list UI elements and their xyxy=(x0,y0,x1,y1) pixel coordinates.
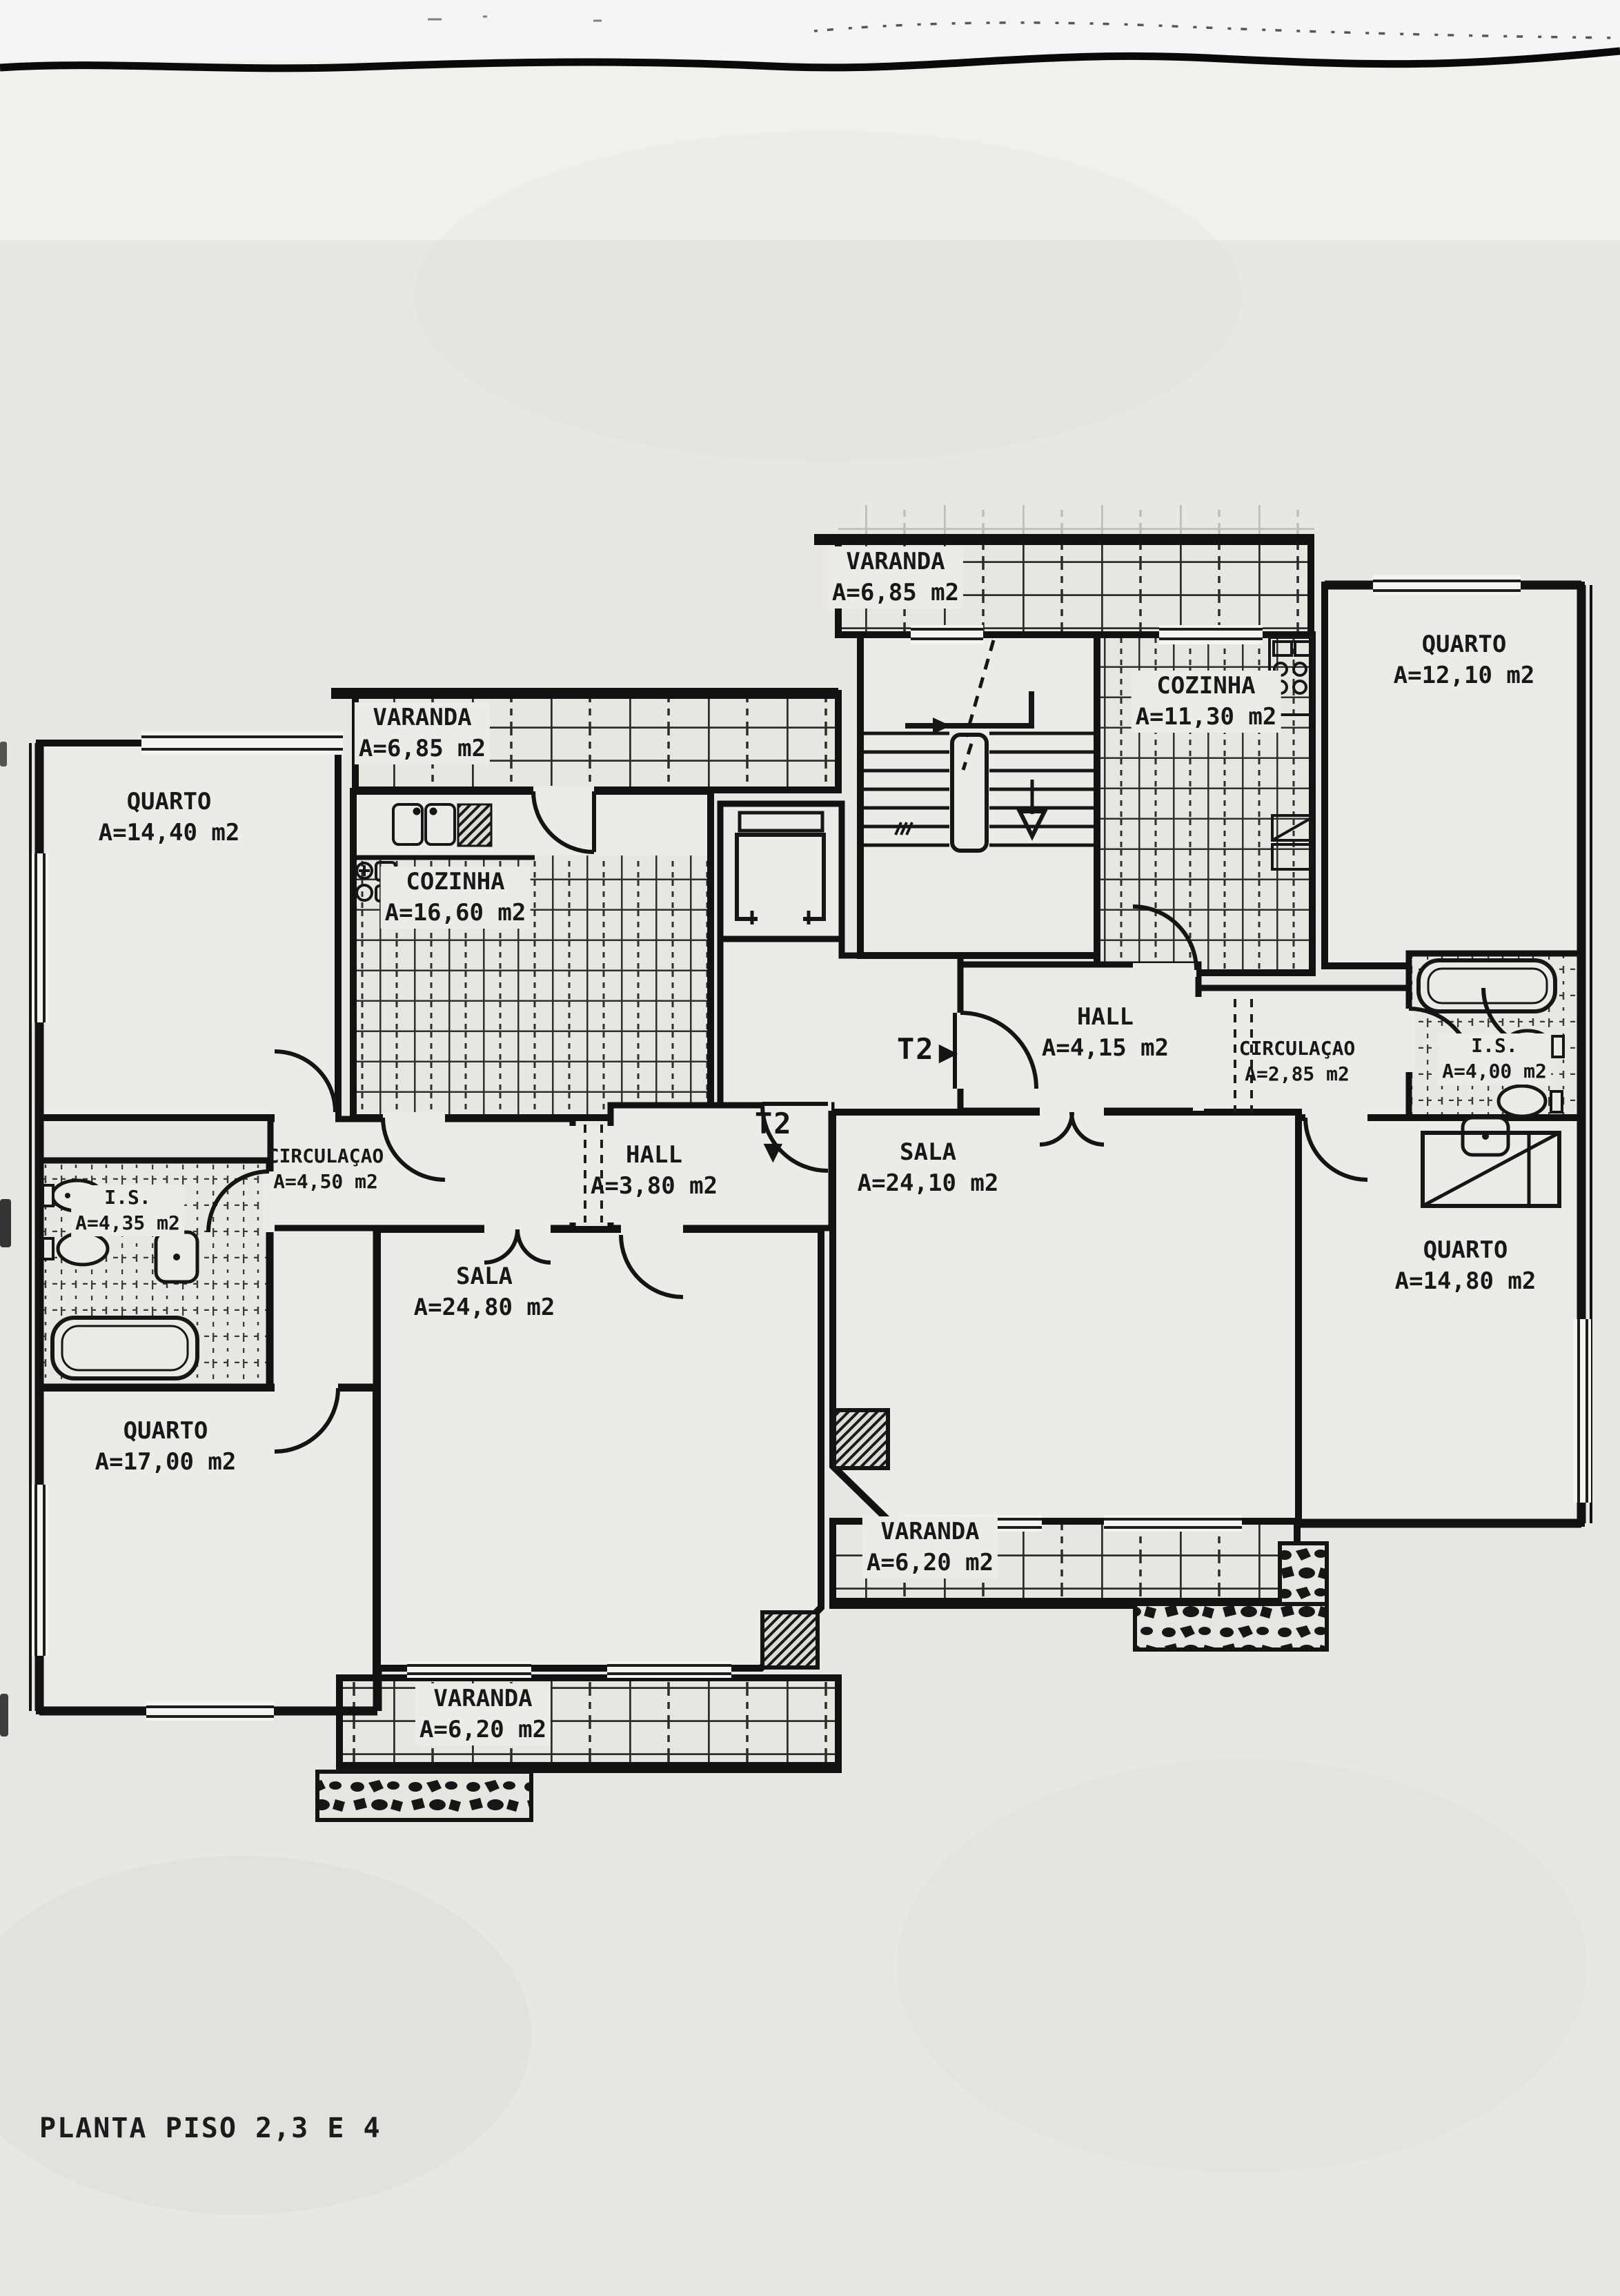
room-label-quarto-top-left: QUARTO A=14,40 m2 xyxy=(95,786,244,849)
room-label-circulacao-right: CIRCULAÇAO A=2,85 m2 xyxy=(1235,1036,1360,1087)
scanned-floor-plan-page: VARANDA A=6,85 m2 COZINHA A=11,30 m2 QUA… xyxy=(0,0,1620,2296)
room-label-cozinha-left: COZINHA A=16,60 m2 xyxy=(381,867,531,929)
room-label-quarto-bottom-right: QUARTO A=14,80 m2 xyxy=(1391,1235,1541,1297)
plan-title: PLANTA PISO 2,3 E 4 xyxy=(39,2112,382,2144)
room-label-hall-left: HALL A=3,80 m2 xyxy=(586,1140,722,1202)
right-triangle-icon: ▶ xyxy=(939,1038,960,1067)
room-label-quarto-bottom-left: QUARTO A=17,00 m2 xyxy=(91,1416,241,1478)
room-label-cozinha-right: COZINHA A=11,30 m2 xyxy=(1132,671,1281,733)
room-label-quarto-top-right: QUARTO A=12,10 m2 xyxy=(1390,629,1539,691)
label-layer: VARANDA A=6,85 m2 COZINHA A=11,30 m2 QUA… xyxy=(0,0,1620,2296)
room-label-varanda-top-right: VARANDA A=6,85 m2 xyxy=(828,546,963,608)
room-label-varanda-bottom-right: VARANDA A=6,20 m2 xyxy=(862,1516,998,1578)
room-label-circulacao-left: CIRCULAÇAO A=4,50 m2 xyxy=(264,1144,388,1195)
room-label-sala-right: SALA A=24,10 m2 xyxy=(853,1137,1003,1199)
room-label-is-left: I.S. A=4,35 m2 xyxy=(71,1185,184,1236)
unit-marker-t2-right: T2▶ xyxy=(897,1035,959,1065)
unit-marker-t2-left: T2▼ xyxy=(755,1109,793,1165)
room-label-varanda-bottom-left: VARANDA A=6,20 m2 xyxy=(415,1683,551,1745)
room-label-hall-right: HALL A=4,15 m2 xyxy=(1038,1002,1173,1064)
down-triangle-icon: ▼ xyxy=(755,1140,793,1165)
room-label-sala-left: SALA A=24,80 m2 xyxy=(410,1261,560,1323)
room-label-varanda-top-left: VARANDA A=6,85 m2 xyxy=(355,702,490,764)
room-label-is-right: I.S. A=4,00 m2 xyxy=(1438,1033,1551,1085)
